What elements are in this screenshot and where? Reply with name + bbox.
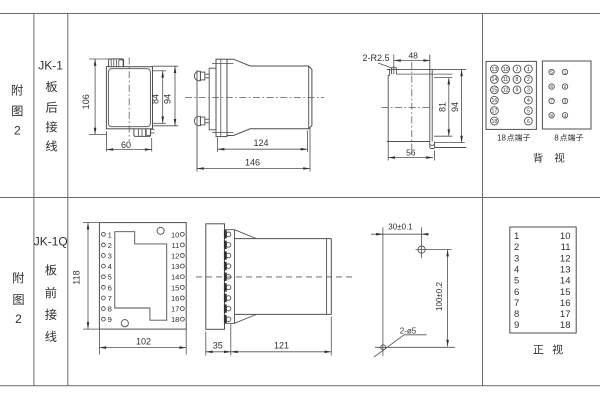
svg-text:3: 3	[108, 252, 112, 261]
svg-text:6: 6	[514, 287, 519, 298]
svg-text:35: 35	[213, 340, 223, 350]
svg-text:7: 7	[514, 298, 519, 309]
svg-text:100±0.2: 100±0.2	[435, 282, 444, 311]
svg-text:17: 17	[492, 108, 498, 114]
svg-text:30±0.1: 30±0.1	[388, 223, 413, 232]
svg-text:4: 4	[514, 264, 519, 275]
svg-text:102: 102	[136, 336, 151, 346]
svg-text:56: 56	[406, 147, 416, 157]
svg-text:118: 118	[72, 270, 82, 284]
svg-text:7: 7	[516, 67, 519, 73]
svg-text:124: 124	[253, 138, 268, 148]
svg-text:2-R2.5: 2-R2.5	[362, 53, 389, 63]
svg-text:18: 18	[171, 315, 179, 324]
svg-text:16: 16	[171, 294, 179, 303]
svg-text:18: 18	[497, 133, 506, 142]
svg-text:17: 17	[171, 305, 179, 314]
svg-text:121: 121	[274, 340, 289, 350]
svg-text:10: 10	[503, 67, 509, 73]
svg-text:8: 8	[108, 305, 112, 314]
svg-text:94: 94	[162, 94, 172, 104]
svg-text:13: 13	[171, 262, 179, 271]
svg-text:JK-1: JK-1	[38, 58, 63, 72]
svg-text:7: 7	[550, 99, 553, 104]
svg-text:11: 11	[172, 241, 180, 250]
svg-text:8: 8	[514, 309, 519, 320]
svg-text:14: 14	[492, 77, 498, 83]
svg-text:5: 5	[108, 273, 112, 282]
svg-text:14: 14	[171, 273, 179, 282]
svg-text:17: 17	[560, 309, 571, 320]
svg-text:14: 14	[560, 276, 571, 287]
svg-text:10: 10	[171, 230, 179, 239]
svg-text:12: 12	[503, 88, 509, 94]
svg-text:10: 10	[560, 231, 571, 242]
svg-text:2: 2	[15, 312, 22, 326]
svg-text:1: 1	[564, 70, 567, 75]
svg-text:3: 3	[514, 253, 519, 264]
svg-text:JK-1Q: JK-1Q	[34, 234, 68, 248]
svg-text:13: 13	[492, 67, 498, 73]
svg-text:2: 2	[564, 84, 567, 89]
svg-text:146: 146	[245, 158, 260, 168]
svg-text:2: 2	[108, 241, 112, 250]
svg-text:1: 1	[527, 67, 530, 73]
svg-text:15: 15	[171, 283, 179, 292]
svg-text:9: 9	[514, 320, 519, 331]
svg-text:106: 106	[81, 94, 91, 109]
svg-text:15: 15	[560, 287, 571, 298]
svg-text:5: 5	[550, 70, 553, 75]
svg-text:2: 2	[14, 124, 21, 138]
svg-text:9: 9	[108, 315, 112, 324]
svg-text:12: 12	[560, 253, 571, 264]
svg-text:2-ø5: 2-ø5	[400, 327, 417, 336]
svg-text:2: 2	[527, 77, 530, 83]
svg-text:4: 4	[108, 262, 112, 271]
svg-text:11: 11	[503, 77, 508, 83]
svg-text:11: 11	[561, 242, 571, 253]
svg-text:6: 6	[527, 119, 530, 125]
svg-text:48: 48	[408, 51, 418, 61]
svg-text:13: 13	[560, 264, 571, 275]
svg-text:16: 16	[560, 298, 571, 309]
svg-text:4: 4	[527, 98, 530, 104]
svg-text:8: 8	[550, 113, 553, 118]
svg-text:60: 60	[121, 140, 131, 150]
svg-text:94: 94	[450, 102, 460, 112]
svg-text:2: 2	[514, 242, 519, 253]
svg-text:5: 5	[514, 276, 519, 287]
svg-text:6: 6	[550, 84, 553, 89]
svg-text:81: 81	[437, 102, 447, 112]
svg-text:8: 8	[554, 133, 559, 142]
svg-text:4: 4	[564, 113, 567, 118]
svg-text:5: 5	[527, 108, 530, 114]
svg-text:84: 84	[150, 94, 160, 104]
svg-text:18: 18	[492, 119, 498, 125]
svg-text:3: 3	[564, 99, 567, 104]
svg-text:6: 6	[108, 283, 112, 292]
svg-text:7: 7	[108, 294, 112, 303]
svg-text:8: 8	[516, 77, 519, 83]
svg-text:15: 15	[492, 88, 498, 94]
svg-text:3: 3	[527, 88, 530, 94]
svg-text:9: 9	[516, 88, 519, 94]
svg-text:16: 16	[492, 98, 498, 104]
svg-text:1: 1	[514, 231, 519, 242]
svg-text:12: 12	[171, 252, 179, 261]
svg-text:18: 18	[560, 320, 571, 331]
svg-text:1: 1	[108, 230, 112, 239]
